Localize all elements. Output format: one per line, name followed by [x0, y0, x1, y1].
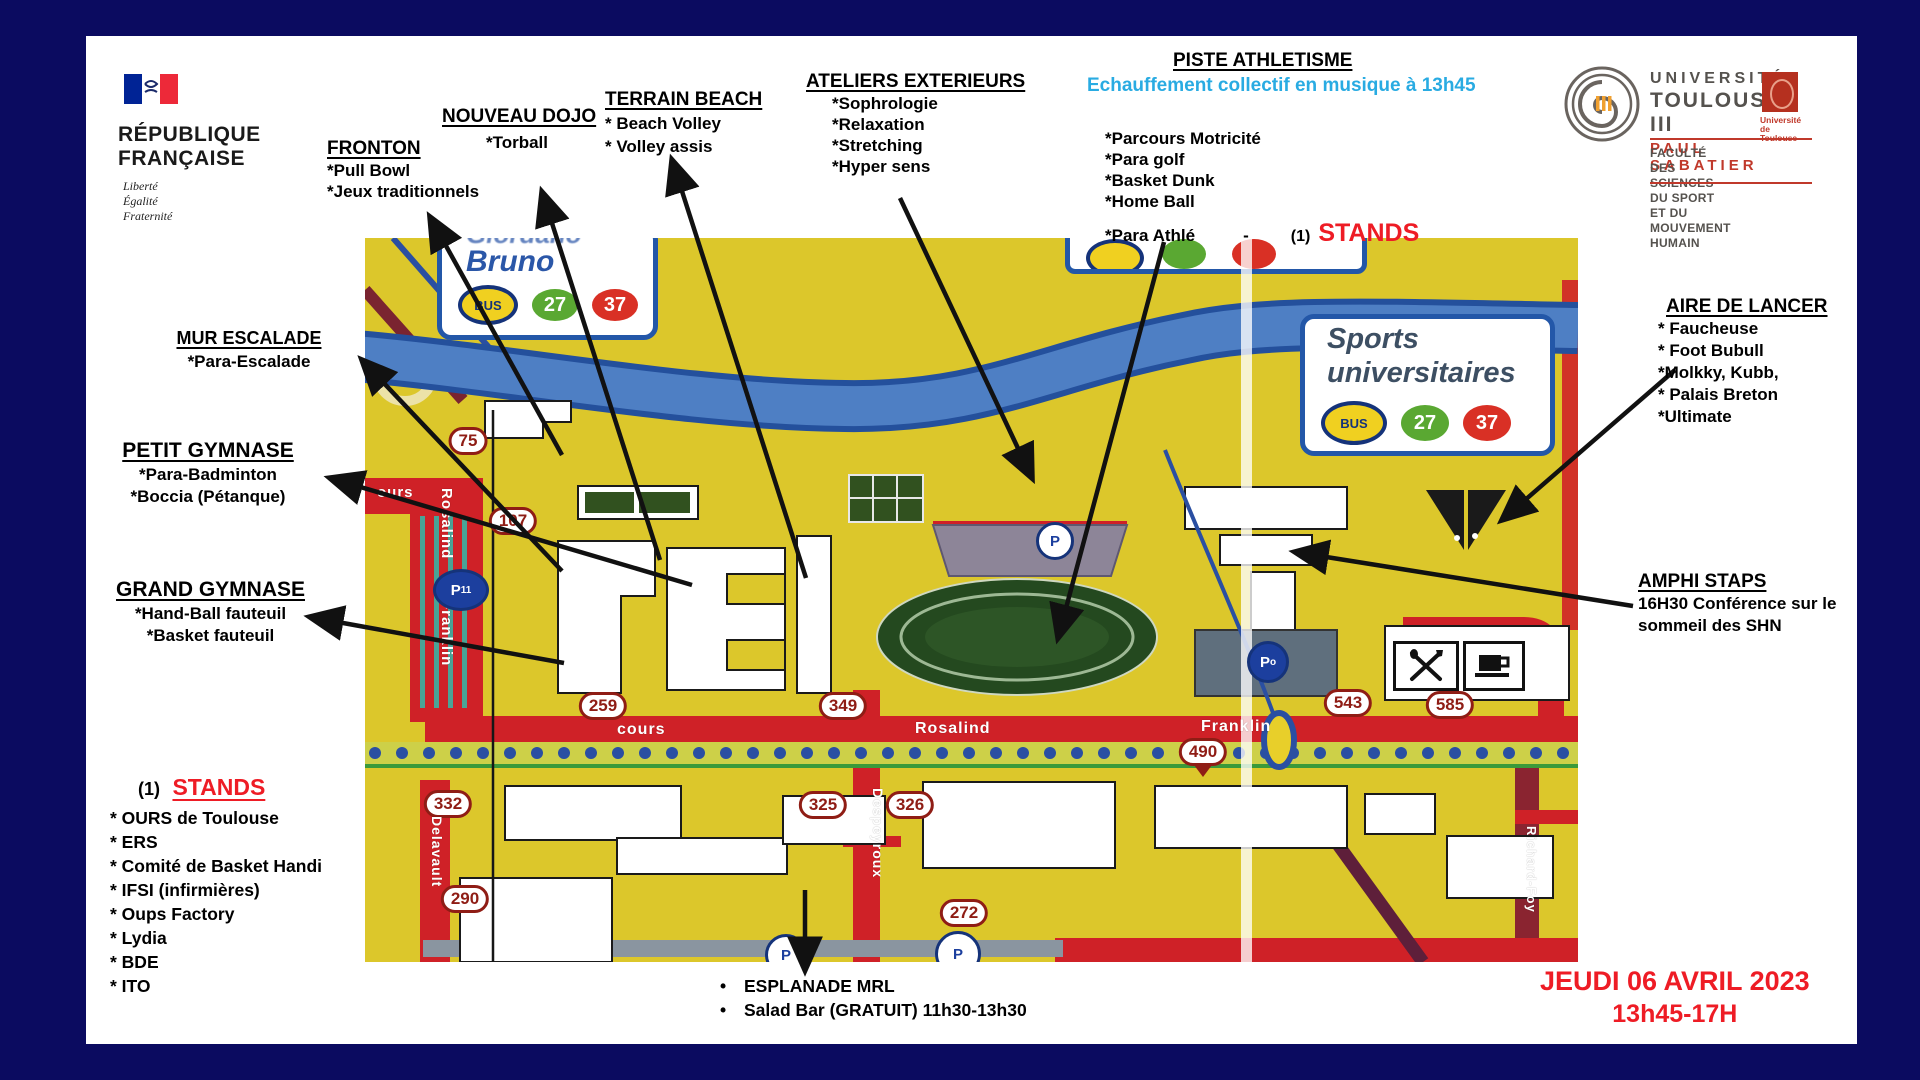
list-item: *Sophrologie — [832, 93, 1025, 114]
list-item: *Jeux traditionnels — [327, 181, 479, 202]
parking-badge: P — [765, 934, 807, 962]
french-flag-icon — [118, 70, 180, 110]
grand-gymnase-label: GRAND GYMNASE *Hand-Ball fauteuil*Basket… — [108, 578, 313, 646]
stands-items: * OURS de Toulouse* ERS* Comité de Baske… — [110, 806, 322, 998]
list-item: ESPLANADE MRL — [706, 974, 1027, 998]
street-label-cours: cours — [617, 721, 666, 739]
line-37-badge: 37 — [592, 289, 638, 321]
petit-gymnase-items: *Para-Badminton*Boccia (Pétanque) — [114, 464, 302, 507]
mur-escalade-items: *Para-Escalade — [160, 351, 338, 372]
street-label-franklin: Franklin — [1201, 718, 1271, 736]
list-item: *Torball — [442, 132, 592, 153]
list-item: * IFSI (infirmières) — [110, 878, 322, 902]
list-item: * ERS — [110, 830, 322, 854]
street-number-543: 543 — [1324, 689, 1372, 717]
street-label-ours: ours — [377, 484, 414, 501]
ateliers-label: ATELIERS EXTERIEURS *Sophrologie*Relaxat… — [806, 71, 1025, 177]
nouveau-dojo-label: NOUVEAU DOJO *Torball — [442, 106, 592, 153]
street-number-490: 490 — [1179, 738, 1227, 766]
stands-label: (1) STANDS * OURS de Toulouse* ERS* Comi… — [110, 774, 322, 998]
stands-title: STANDS — [172, 774, 265, 800]
stands-ref: (1) — [138, 779, 160, 799]
street-label-rosalind: Rosalind — [915, 720, 991, 738]
aire-de-lancer-title: AIRE DE LANCER — [1666, 296, 1828, 318]
dash: - — [1243, 226, 1249, 246]
list-item: *Para-Badminton — [114, 464, 302, 485]
stands-heading: (1) STANDS — [110, 774, 322, 801]
list-item: *Stretching — [832, 135, 1025, 156]
list-item: 16H30 Conférence sur le — [1638, 593, 1836, 615]
bus-stop-name: Bruno — [466, 245, 554, 279]
list-item: *Pull Bowl — [327, 160, 479, 181]
list-item: *Para golf — [1105, 149, 1523, 170]
list-item: *Home Ball — [1105, 191, 1523, 212]
ateliers-items: *Sophrologie*Relaxation*Stretching*Hyper… — [832, 93, 1025, 177]
list-item: sommeil des SHN — [1638, 615, 1836, 637]
grand-gymnase-items: *Hand-Ball fauteuil*Basket fauteuil — [108, 603, 313, 646]
piste-items: *Parcours Motricité*Para golf*Basket Dun… — [1087, 128, 1523, 212]
republique-line2: FRANÇAISE — [118, 147, 261, 171]
bus-badge: BUS — [458, 285, 518, 325]
fronton-items: *Pull Bowl*Jeux traditionnels — [327, 160, 479, 202]
piste-athletisme-label: PISTE ATHLETISME Echauffement collectif … — [1087, 50, 1523, 248]
logo-rule-top — [1650, 138, 1812, 140]
list-item: Salad Bar (GRATUIT) 11h30-13h30 — [706, 998, 1027, 1022]
petit-gymnase-label: PETIT GYMNASE *Para-Badminton*Boccia (Pé… — [114, 439, 302, 507]
street-number-272: 272 — [940, 899, 988, 927]
list-item: *Basket Dunk — [1105, 170, 1523, 191]
grand-gymnase-title: GRAND GYMNASE — [108, 578, 313, 602]
bus-stop-sign-sports-universitaires: Sports universitaires BUS 27 37 — [1300, 314, 1555, 456]
list-item: * Beach Volley — [605, 113, 762, 134]
list-item: *Relaxation — [832, 114, 1025, 135]
street-number-290: 290 — [441, 885, 489, 913]
piste-title: PISTE ATHLETISME — [1173, 50, 1352, 72]
terrain-beach-label: TERRAIN BEACH * Beach Volley* Volley ass… — [605, 89, 762, 157]
sign-line2: universitaires — [1327, 357, 1516, 390]
street-label-rosalind: Rosalind — [438, 488, 455, 559]
event-date-line1: JEUDI 06 AVRIL 2023 — [1540, 966, 1810, 997]
street-label-delavault: Delavault — [429, 816, 445, 887]
list-item: *Ultimate — [1658, 406, 1828, 428]
sign-line1: Sports — [1327, 323, 1419, 356]
list-item: *Para-Escalade — [160, 351, 338, 372]
amphi-staps-label: AMPHI STAPS 16H30 Conférence sur lesomme… — [1638, 571, 1836, 637]
street-number-585: 585 — [1426, 691, 1474, 719]
parking-badge: P — [1036, 522, 1074, 560]
logo-rule-bottom — [1650, 182, 1812, 184]
terrain-beach-title: TERRAIN BEACH — [605, 89, 762, 111]
mur-escalade-title: MUR ESCALADE — [160, 328, 338, 349]
street-number-107: 107 — [489, 507, 537, 535]
amphi-staps-items: 16H30 Conférence sur lesommeil des SHN — [1638, 593, 1836, 637]
list-item: * Lydia — [110, 926, 322, 950]
list-item: * OURS de Toulouse — [110, 806, 322, 830]
para-athle-item: *Para Athlé — [1105, 226, 1195, 246]
street-number-332: 332 — [424, 790, 472, 818]
piste-last-row: *Para Athlé - (1) STANDS — [1087, 219, 1523, 248]
petit-gymnase-title: PETIT GYMNASE — [114, 439, 302, 463]
list-item: *Parcours Motricité — [1105, 128, 1523, 149]
list-item: Liberté — [123, 179, 261, 194]
list-item: * ITO — [110, 974, 322, 998]
list-item: *Basket fauteuil — [108, 625, 313, 646]
bus-stop-sign-bruno: Giordano Bruno BUS 27 37 — [437, 238, 658, 340]
street-number-325: 325 — [799, 791, 847, 819]
map-overlay: Giordano Bruno BUS 27 37 Sports universi… — [365, 238, 1578, 962]
list-item: *Boccia (Pétanque) — [114, 486, 302, 507]
bus-badge: BUS — [1321, 401, 1387, 445]
republique-francaise-logo: RÉPUBLIQUE FRANÇAISE LibertéÉgalitéFrate… — [118, 70, 261, 224]
line-27-badge: 27 — [1401, 405, 1449, 441]
piste-subtitle: Echauffement collectif en musique à 13h4… — [1087, 75, 1523, 97]
parking-badge: Po — [1247, 641, 1289, 683]
badge-pointer — [1194, 765, 1212, 786]
list-item: * Volley assis — [605, 136, 762, 157]
street-number-259: 259 — [579, 692, 627, 720]
amphi-staps-title: AMPHI STAPS — [1638, 571, 1836, 593]
universite-de-toulouse-badge — [1762, 72, 1798, 112]
list-item: *Hand-Ball fauteuil — [108, 603, 313, 624]
list-item: * BDE — [110, 950, 322, 974]
street-number-326: 326 — [886, 791, 934, 819]
esplanade-items: ESPLANADE MRLSalad Bar (GRATUIT) 11h30-1… — [706, 974, 1027, 1022]
parking-badge: P11 — [433, 569, 489, 611]
stands-ref: (1) — [1291, 228, 1311, 246]
ateliers-title: ATELIERS EXTERIEURS — [806, 71, 1025, 93]
street-label-richard-foy: Richard-Foy — [1524, 826, 1539, 913]
motto: LibertéÉgalitéFraternité — [123, 179, 261, 224]
esplanade-label: ESPLANADE MRLSalad Bar (GRATUIT) 11h30-1… — [706, 974, 1027, 1022]
event-date-line2: 13h45-17H — [1540, 1000, 1810, 1029]
list-item: * Comité de Basket Handi — [110, 854, 322, 878]
list-item: * Oups Factory — [110, 902, 322, 926]
aire-de-lancer-label: AIRE DE LANCER * Faucheuse* Foot Bubull*… — [1658, 296, 1828, 428]
faculty-name: FACULTÉ DES SCIENCES DU SPORT ET DU MOUV… — [1650, 146, 1731, 251]
list-item: *Hyper sens — [832, 156, 1025, 177]
line-27-badge: 27 — [532, 289, 578, 321]
restaurant-icon — [1393, 641, 1459, 691]
list-item: * Foot Bubull — [1658, 340, 1828, 362]
event-date: JEUDI 06 AVRIL 2023 13h45-17H — [1540, 966, 1810, 1029]
street-label-despeyroux: Despeyroux — [870, 788, 886, 878]
list-item: *Molkky, Kubb, — [1658, 362, 1828, 384]
mur-escalade-label: MUR ESCALADE *Para-Escalade — [160, 328, 338, 372]
list-item: * Faucheuse — [1658, 318, 1828, 340]
stands-word: STANDS — [1318, 219, 1419, 248]
ut3-spiral-icon — [1562, 64, 1642, 144]
line-37-badge: 37 — [1463, 405, 1511, 441]
scan-fold-line — [1241, 238, 1252, 962]
nouveau-dojo-items: *Torball — [442, 132, 592, 153]
list-item: * Palais Breton — [1658, 384, 1828, 406]
list-item: Fraternité — [123, 209, 261, 224]
parking-badge: P — [935, 931, 981, 962]
list-item: Égalité — [123, 194, 261, 209]
republique-line1: RÉPUBLIQUE — [118, 123, 261, 147]
street-number-349: 349 — [819, 692, 867, 720]
terrain-beach-items: * Beach Volley* Volley assis — [605, 113, 762, 157]
nouveau-dojo-title: NOUVEAU DOJO — [442, 106, 592, 128]
universite-toulouse-logo: UNIVERSITÉ TOULOUSE III PAUL SABATIER Un… — [1562, 64, 1642, 149]
street-number-75: 75 — [449, 427, 488, 455]
aire-de-lancer-items: * Faucheuse* Foot Bubull*Molkky, Kubb,* … — [1658, 318, 1828, 428]
cafe-icon — [1463, 641, 1525, 691]
